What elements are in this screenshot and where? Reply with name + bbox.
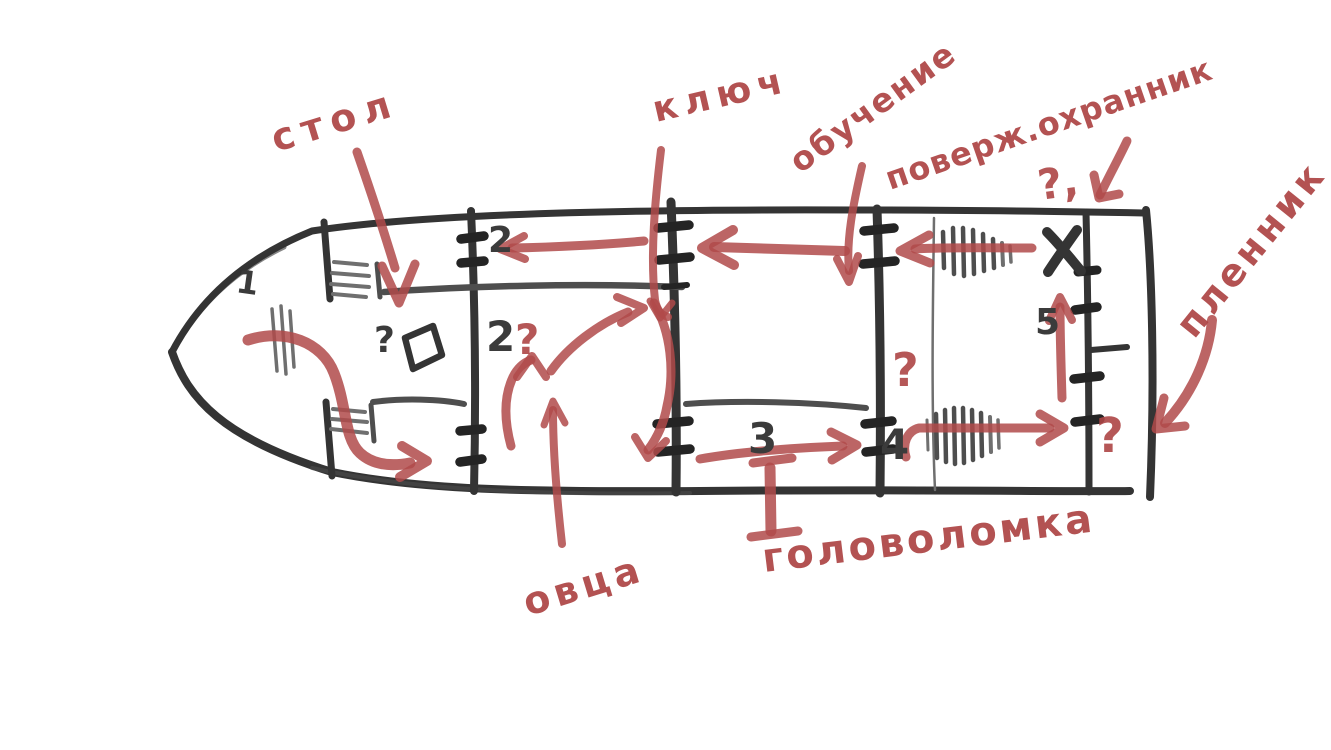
hold-question-mark: ? xyxy=(515,315,539,364)
label-table: стол xyxy=(266,80,404,160)
room-number-5: 5 xyxy=(1035,302,1060,343)
bulkhead-1 xyxy=(471,211,475,491)
entry-arrow xyxy=(1100,141,1127,195)
room-number-hold: 2 xyxy=(486,312,515,361)
bow-wall-bottom-stub xyxy=(326,402,332,476)
deck-line-bow-alcove xyxy=(373,400,464,404)
stern-bench-line xyxy=(1091,347,1127,350)
label-puzzle: головоломка xyxy=(760,495,1098,581)
stern-question-mark: ? xyxy=(1096,408,1124,464)
stairs-icon-room4 xyxy=(927,408,999,464)
bulkhead-4 xyxy=(1086,212,1089,492)
room-number-3: 3 xyxy=(748,414,777,463)
bow-wall-top-stub xyxy=(324,222,330,299)
key-pointer-line xyxy=(653,150,668,317)
sheep-pointer-arrow xyxy=(553,410,562,544)
stern-line xyxy=(1146,210,1153,497)
table-pointer-arrow xyxy=(357,152,395,268)
label-prisoner: пленник xyxy=(1167,153,1331,346)
label-key: ключ xyxy=(649,60,793,131)
room4-question-mark: ? xyxy=(892,343,919,397)
table-icon xyxy=(405,326,442,369)
room-number-bow: 1 xyxy=(234,262,261,303)
ship-sketch: стол ключ обучение поверж.охранник ?, пл… xyxy=(0,0,1331,750)
corridor-arrow-left-2 xyxy=(714,247,845,251)
puzzle-pointer xyxy=(770,468,771,531)
entry-question-mark: ?, xyxy=(1035,156,1082,210)
label-sheep: овца xyxy=(518,546,649,624)
x-mark-icon xyxy=(1047,230,1081,272)
hull-bow-sketch-line xyxy=(178,247,284,342)
hold-to-door-arrow xyxy=(551,312,628,371)
sketch-canvas: стол ключ обучение поверж.охранник ?, пл… xyxy=(0,0,1331,750)
deck-line-room3 xyxy=(686,402,866,408)
table-question-mark: ? xyxy=(374,320,395,361)
corridor-arrow-left-1 xyxy=(512,241,644,248)
corridor-arrow-left-3 xyxy=(915,248,1032,249)
room-number-4: 4 xyxy=(880,420,909,469)
door-down-curve-arrow xyxy=(648,303,671,450)
room-number-corridor: 2 xyxy=(488,220,513,261)
deck-line-forward xyxy=(384,285,682,292)
bow-ladder-icon xyxy=(331,262,380,297)
room5-up-arrow xyxy=(1060,307,1062,398)
